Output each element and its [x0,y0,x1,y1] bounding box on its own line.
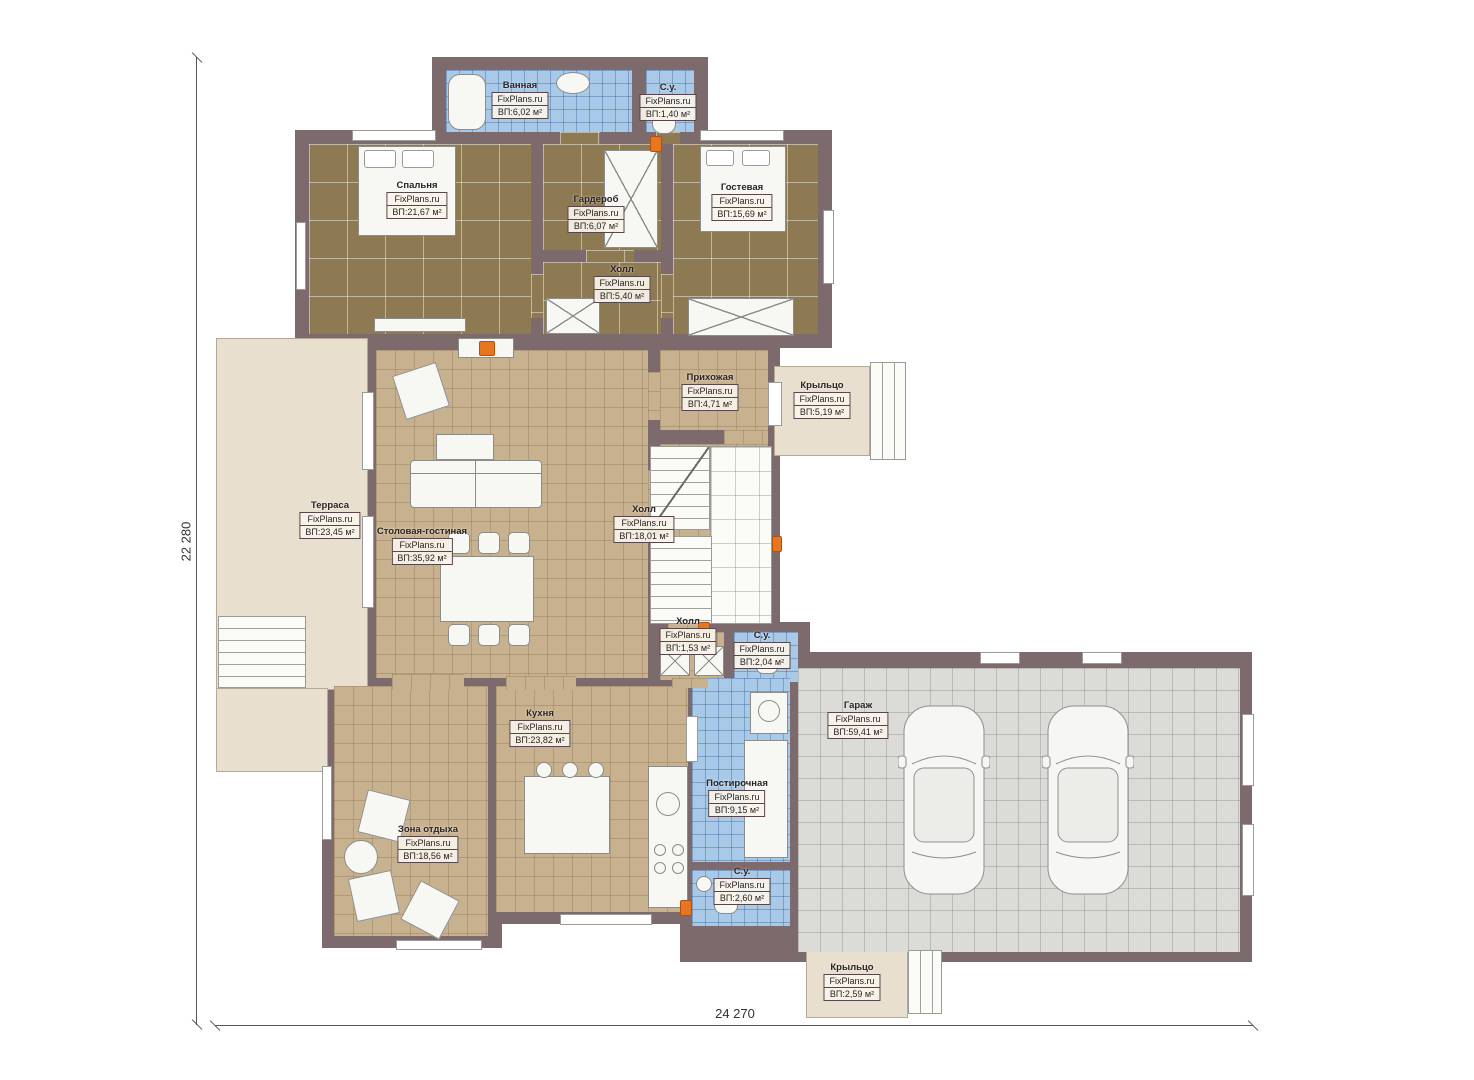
opening-living-entry [648,372,660,420]
garage-door-1 [1242,714,1254,786]
brand-watermark: FixPlans.ru [794,393,849,405]
room-info-box: FixPlans.ru ВП:23,82 м² [509,720,570,747]
room-label-porch-right: Крыльцо FixPlans.ru ВП:5,19 м² [793,380,850,419]
dimension-height-label: 22 280 [179,512,194,572]
pillow [364,150,396,168]
stove-burner [654,844,666,856]
dining-chair [478,532,500,554]
brand-watermark: FixPlans.ru [714,879,769,891]
room-label-guest-room: Гостевая FixPlans.ru ВП:15,69 м² [711,182,772,221]
brand-watermark: FixPlans.ru [510,721,569,733]
opening-wardrobe-door [586,250,634,262]
room-area: ВП:5,19 м² [794,405,849,418]
room-label-wc-top: С.у. FixPlans.ru ВП:1,40 м² [639,82,696,121]
terrace-steps [218,616,306,688]
stairs-lower-flight [650,536,712,624]
room-area: ВП:2,59 м² [824,987,879,1000]
room-info-box: FixPlans.ru ВП:59,41 м² [827,712,888,739]
dimension-width-label: 24 270 [700,1006,770,1021]
washer-drum [758,700,780,722]
room-name: Холл [610,264,634,275]
room-label-garage: Гараж FixPlans.ru ВП:59,41 м² [827,700,888,739]
room-name: Холл [676,616,700,627]
room-info-box: FixPlans.ru ВП:6,02 м² [491,92,548,119]
stove-burner [672,844,684,856]
room-info-box: FixPlans.ru ВП:6,07 м² [567,206,624,233]
opening-lounge-living [392,674,464,690]
room-info-box: FixPlans.ru ВП:5,40 м² [593,276,650,303]
room-area: ВП:59,41 м² [828,725,887,738]
dining-chair [508,532,530,554]
bar-stool [588,762,604,778]
room-info-box: FixPlans.ru ВП:5,19 м² [793,392,850,419]
dining-chair [478,624,500,646]
room-name: Постирочная [706,778,768,789]
bathtub [448,74,486,130]
dining-table [440,556,534,622]
room-label-hall-upper: Холл FixPlans.ru ВП:5,40 м² [593,264,650,303]
porch-right-steps [870,362,906,460]
room-name: Терраса [311,500,349,511]
room-area: ВП:1,53 м² [660,641,715,654]
kitchen-counter [648,766,688,908]
brand-watermark: FixPlans.ru [709,791,764,803]
room-info-box: FixPlans.ru ВП:2,04 м² [733,642,790,669]
room-area: ВП:2,04 м² [734,655,789,668]
kitchen-sink [656,792,680,816]
bar-stool [562,762,578,778]
room-label-lounge: Зона отдыха FixPlans.ru ВП:18,56 м² [397,824,458,863]
window-garage-top-1 [980,652,1020,664]
car [898,702,990,898]
pillow [706,150,734,166]
room-info-box: FixPlans.ru ВП:18,56 м² [397,836,458,863]
brand-watermark: FixPlans.ru [614,517,673,529]
opening-bath-door [560,132,600,144]
room-area: ВП:6,02 м² [492,105,547,118]
door-living-terrace [362,516,374,608]
room-name: С.у. [734,866,751,877]
room-label-wc-mid: С.у. FixPlans.ru ВП:2,04 м² [733,630,790,669]
terrace-area-lower [216,688,328,772]
floor-plan: Ванная FixPlans.ru ВП:6,02 м² С.у. FixPl… [0,0,1474,1080]
heater-icon [680,900,692,916]
window-guest-right [823,210,834,284]
kitchen-island [524,776,610,854]
closet-hall-upper [546,298,600,334]
window-living-terrace-upper [362,392,374,470]
brand-watermark: FixPlans.ru [387,193,446,205]
room-label-bedroom: Спальня FixPlans.ru ВП:21,67 м² [386,180,447,219]
opening-living-kitchen [506,676,576,690]
room-name: Кухня [526,708,554,719]
room-area: ВП:1,40 м² [640,107,695,120]
room-info-box: FixPlans.ru ВП:2,60 м² [713,878,770,905]
room-area: ВП:4,71 м² [682,397,737,410]
room-name: Холл [632,504,656,515]
room-area: ВП:5,40 м² [594,289,649,302]
closet-guest [688,298,794,336]
porch-bottom-steps [908,950,942,1014]
car [1042,702,1134,898]
room-name: Прихожая [687,372,734,383]
room-area: ВП:6,07 м² [568,219,623,232]
opening-guest-door [661,274,673,318]
sink-bathroom [556,72,590,94]
room-label-entry: Прихожая FixPlans.ru ВП:4,71 м² [681,372,738,411]
window-lounge-bottom [396,940,482,950]
window-garage-top-2 [1082,652,1122,664]
kitchen-laundry-door [686,716,698,762]
dimension-line-vertical [196,57,197,1025]
brand-watermark: FixPlans.ru [594,277,649,289]
room-name: С.у. [754,630,771,641]
dining-chair [448,624,470,646]
window-lounge-left [322,766,332,840]
heater-icon [650,136,662,152]
room-info-box: FixPlans.ru ВП:2,59 м² [823,974,880,1001]
room-info-box: FixPlans.ru ВП:21,67 м² [386,192,447,219]
opening-kitchen-hallsmall [672,678,708,688]
fireplace-flame-icon [479,341,495,356]
brand-watermark: FixPlans.ru [492,93,547,105]
stove-burner [672,862,684,874]
lounge-table [344,840,378,874]
dimension-tick [192,52,203,63]
window-guest-top [700,130,784,141]
brand-watermark: FixPlans.ru [640,95,695,107]
room-name: Крыльцо [830,962,873,973]
garage-door-2 [1242,824,1254,896]
room-info-box: FixPlans.ru ВП:23,45 м² [299,512,360,539]
stove-burner [654,862,666,874]
brand-watermark: FixPlans.ru [300,513,359,525]
room-label-kitchen: Кухня FixPlans.ru ВП:23,82 м² [509,708,570,747]
dresser-master [374,318,466,332]
room-area: ВП:23,82 м² [510,733,569,746]
room-label-bathroom-top: Ванная FixPlans.ru ВП:6,02 м² [491,80,548,119]
room-name: Гостевая [721,182,763,193]
room-label-wc-low: С.у. FixPlans.ru ВП:2,60 м² [713,866,770,905]
room-name: Гардероб [574,194,619,205]
dimension-tick [192,1019,203,1030]
window-bedroom-left [296,222,306,290]
brand-watermark: FixPlans.ru [392,539,451,551]
entrance-door [768,382,782,426]
room-label-hall-small: Холл FixPlans.ru ВП:1,53 м² [659,616,716,655]
room-name: Гараж [844,700,872,711]
coffee-table [436,434,494,460]
room-name: Столовая-гостиная [377,526,467,537]
room-label-porch-bottom: Крыльцо FixPlans.ru ВП:2,59 м² [823,962,880,1001]
bar-stool [536,762,552,778]
room-name: Ванная [503,80,537,91]
room-name: С.у. [660,82,677,93]
room-area: ВП:21,67 м² [387,205,446,218]
room-info-box: FixPlans.ru ВП:1,40 м² [639,94,696,121]
room-info-box: FixPlans.ru ВП:18,01 м² [613,516,674,543]
room-info-box: FixPlans.ru ВП:4,71 м² [681,384,738,411]
room-info-box: FixPlans.ru ВП:35,92 м² [391,538,452,565]
heater-icon [772,536,782,552]
pillow [742,150,770,166]
brand-watermark: FixPlans.ru [660,629,715,641]
room-info-box: FixPlans.ru ВП:9,15 м² [708,790,765,817]
room-label-terrace: Терраса FixPlans.ru ВП:23,45 м² [299,500,360,539]
dining-chair [508,624,530,646]
room-area: ВП:15,69 м² [712,207,771,220]
room-label-dining-living: Столовая-гостиная FixPlans.ru ВП:35,92 м… [377,526,467,565]
room-info-box: FixPlans.ru ВП:1,53 м² [659,628,716,655]
opening-bedroom-door [531,274,543,318]
brand-watermark: FixPlans.ru [824,975,879,987]
window-bedroom-top [352,130,436,141]
room-area: ВП:9,15 м² [709,803,764,816]
room-name: Спальня [396,180,437,191]
room-label-hall-main: Холл FixPlans.ru ВП:18,01 м² [613,504,674,543]
brand-watermark: FixPlans.ru [398,837,457,849]
room-info-box: FixPlans.ru ВП:15,69 м² [711,194,772,221]
room-area: ВП:23,45 м² [300,525,359,538]
room-label-laundry: Постирочная FixPlans.ru ВП:9,15 м² [706,778,768,817]
room-name: Зона отдыха [398,824,458,835]
brand-watermark: FixPlans.ru [682,385,737,397]
pillow [402,150,434,168]
brand-watermark: FixPlans.ru [568,207,623,219]
brand-watermark: FixPlans.ru [828,713,887,725]
lounge-armchair [348,870,400,922]
room-area: ВП:18,56 м² [398,849,457,862]
opening-entry-hall [724,430,768,444]
dimension-line-horizontal [215,1025,1253,1026]
sofa [410,460,542,508]
brand-watermark: FixPlans.ru [734,643,789,655]
room-area: ВП:35,92 м² [392,551,451,564]
stairs-landing [710,446,772,624]
brand-watermark: FixPlans.ru [712,195,771,207]
room-name: Крыльцо [800,380,843,391]
room-area: ВП:2,60 м² [714,891,769,904]
room-area: ВП:18,01 м² [614,529,673,542]
room-label-wardrobe: Гардероб FixPlans.ru ВП:6,07 м² [567,194,624,233]
window-kitchen-bottom [560,914,652,925]
sink-wc-low [696,876,712,892]
